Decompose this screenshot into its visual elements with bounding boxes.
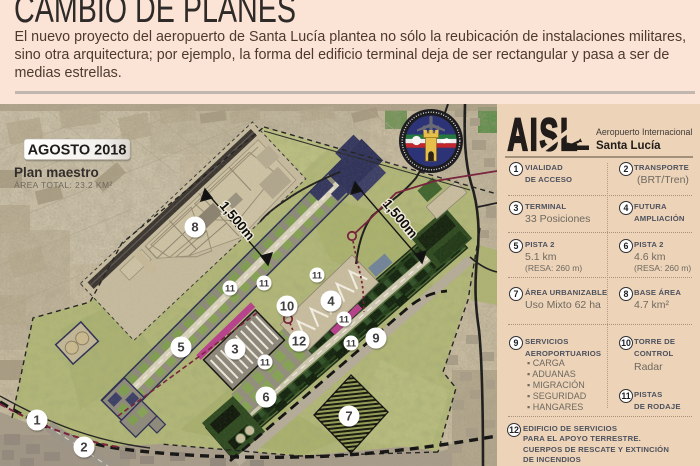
- svg-text:AGOSTO 2018: AGOSTO 2018: [28, 143, 127, 159]
- svg-text:1: 1: [33, 413, 40, 428]
- svg-text:11: 11: [339, 314, 350, 325]
- svg-text:10: 10: [280, 299, 294, 314]
- svg-text:11: 11: [346, 338, 357, 349]
- svg-text:3: 3: [231, 342, 238, 357]
- svg-text:Plan maestro: Plan maestro: [14, 165, 99, 180]
- svg-text:9: 9: [372, 331, 379, 346]
- svg-text:8: 8: [191, 220, 198, 235]
- svg-text:ÁREA TOTAL: 23.2 KM²: ÁREA TOTAL: 23.2 KM²: [14, 180, 113, 190]
- svg-text:11: 11: [260, 357, 271, 368]
- svg-text:11: 11: [312, 270, 323, 281]
- svg-text:11: 11: [225, 283, 236, 294]
- svg-text:5: 5: [177, 340, 184, 355]
- svg-text:12: 12: [292, 334, 306, 349]
- svg-text:4: 4: [327, 294, 335, 309]
- svg-text:6: 6: [262, 390, 269, 405]
- svg-text:11: 11: [259, 278, 270, 289]
- svg-text:2: 2: [80, 440, 87, 455]
- svg-text:7: 7: [345, 409, 352, 424]
